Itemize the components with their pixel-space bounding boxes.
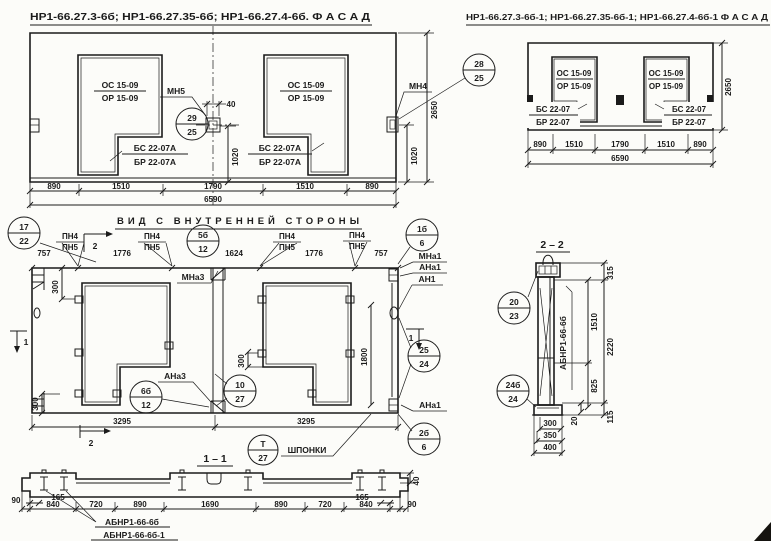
anchor-mark-an1: АН1: [418, 274, 435, 284]
apron-mark: БС 22-07А: [134, 143, 176, 153]
callout-2b-6: 2б 6: [398, 414, 440, 455]
blueprint-sheet: НР1-66.27.3-6б; НР1-66.27.35-6б; НР1-66.…: [0, 0, 771, 541]
window-mark: ОР 15-09: [102, 93, 139, 103]
facade-main-title: НР1-66.27.3-6б; НР1-66.27.35-6б; НР1-66.…: [30, 11, 370, 23]
section-marker-label: 1: [24, 337, 29, 347]
apron-mark: БР 22-07: [536, 118, 570, 127]
linework: [527, 399, 536, 407]
callout-bottom: 24: [419, 359, 429, 369]
linework: [398, 247, 410, 264]
dim: 1790: [204, 182, 222, 191]
dim-total: 6590: [611, 154, 629, 163]
linework: [22, 473, 408, 497]
anchor-mark-pn5: ПН5: [144, 243, 161, 252]
window-mark: ОР 15-09: [557, 82, 592, 91]
callout-bottom: 25: [474, 73, 484, 83]
linework: [225, 30, 430, 185]
anchor-mark-mn5: МН5: [167, 86, 185, 96]
callout-bottom: 25: [187, 127, 197, 137]
linework: [32, 268, 398, 413]
dim: 3295: [113, 417, 131, 426]
linework: [578, 260, 607, 418]
dim: 890: [133, 500, 147, 509]
dim: 165: [355, 493, 369, 502]
linework: [536, 263, 560, 277]
linework: [104, 428, 111, 434]
anchor-mark-ana1: АНа1: [419, 400, 441, 410]
apron-mark: БС 22-07: [672, 105, 707, 114]
dim: 890: [533, 140, 547, 149]
inner-view: ВИД С ВНУТРЕННЕЙ СТОРОНЫ 17 22 ПН4 ПН5 П…: [8, 215, 447, 465]
section-marker-label: 1: [409, 333, 414, 343]
dim: 315: [606, 266, 615, 280]
dim: 1020: [231, 148, 240, 166]
dim: 1510: [296, 182, 314, 191]
dim: 1510: [657, 140, 675, 149]
drawing-canvas: НР1-66.27.3-6б; НР1-66.27.35-6б; НР1-66.…: [0, 0, 771, 541]
linework: [30, 119, 39, 132]
linework: [390, 307, 398, 319]
linework: [539, 266, 557, 274]
linework: [390, 120, 395, 129]
linework: [534, 405, 562, 415]
window-mark: ОС 15-09: [649, 69, 684, 78]
dim: 890: [365, 182, 379, 191]
linework: [398, 414, 412, 431]
dim: 1510: [565, 140, 583, 149]
apron-mark: БС 22-07: [536, 105, 571, 114]
linework: [165, 342, 173, 349]
section-1-1: 1 – 1 40 90 165 840 720 890 1690 890 720…: [12, 453, 421, 540]
linework: [106, 231, 113, 237]
linework: [162, 399, 209, 407]
anchor-mark-mn4: МН4: [409, 81, 427, 91]
callout-24b-24: 24б 24: [497, 375, 536, 407]
window-mark: ОР 15-09: [649, 82, 684, 91]
panel-brand: АБНР1-66-6б-1: [103, 530, 165, 540]
dim: 2220: [606, 338, 615, 356]
linework: [267, 58, 345, 172]
section-marker-2: 2: [84, 231, 113, 252]
callout-top: 24б: [506, 380, 521, 390]
anchor-mark-ana3: АНа3: [164, 371, 186, 381]
dim: 757: [374, 249, 388, 258]
callout-bottom: 27: [235, 394, 245, 404]
dim: 1020: [410, 147, 419, 165]
callout-bottom: 6: [420, 238, 425, 248]
dim: 720: [89, 500, 103, 509]
linework: [258, 296, 266, 303]
linework: [82, 283, 170, 405]
callout-bottom: 23: [509, 311, 519, 321]
linework: [346, 350, 354, 357]
linework: [202, 101, 226, 116]
linework: [545, 266, 551, 274]
dim: 840: [46, 500, 60, 509]
facade-mirrored: НР1-66.27.3-6б-1; НР1-66.27.35-6б-1; НР1…: [466, 12, 770, 168]
window-mark: ОР 15-09: [288, 93, 325, 103]
callout-6b-12: 6б 12: [130, 381, 209, 413]
dim: 1510: [112, 182, 130, 191]
dim: 40: [412, 476, 421, 485]
dim: 2650: [430, 101, 439, 119]
section-marker-1-left: 1: [10, 331, 29, 353]
scan-corner-artifact: [754, 522, 771, 541]
window-mark: ОС 15-09: [288, 80, 325, 90]
apron-mark: БР 22-07А: [134, 157, 176, 167]
linework: [81, 58, 159, 172]
dim: 1776: [305, 249, 323, 258]
section-marker-label: 2: [93, 241, 98, 251]
linework: [616, 95, 624, 105]
linework: [32, 268, 44, 290]
dim: 400: [543, 443, 557, 452]
dim: 40: [227, 100, 236, 109]
anchor-mark-pn4: ПН4: [144, 232, 161, 241]
callout-17-22: 17 22: [8, 217, 96, 262]
linework: [32, 415, 398, 431]
linework: [39, 265, 374, 416]
dim: 1690: [201, 500, 219, 509]
anchor-mark-pn4: ПН4: [279, 232, 296, 241]
anchor-mark-pn5: ПН5: [62, 243, 79, 252]
dim: 890: [693, 140, 707, 149]
dim: 300: [237, 354, 246, 368]
callout-top: 28: [474, 59, 484, 69]
dim: 890: [274, 500, 288, 509]
callout-top: 20: [509, 297, 519, 307]
linework: [42, 299, 263, 394]
dim: 300: [543, 419, 557, 428]
section-1-1-title: 1 – 1: [203, 453, 227, 465]
linework: [85, 286, 167, 402]
dim: 1800: [360, 348, 369, 366]
keys-label: ШПОНКИ: [288, 445, 327, 455]
dim: 115: [606, 410, 615, 423]
anchor-mark-mna3: МНа3: [182, 272, 205, 282]
linework: [528, 271, 538, 297]
dim: 1510: [590, 313, 599, 331]
anchor-marks-pn: ПН4 ПН5 ПН4 ПН5 ПН4 ПН5 ПН4 ПН5: [56, 231, 371, 266]
callout-top: 1б: [417, 224, 427, 234]
window-mark: ОС 15-09: [102, 80, 139, 90]
callout-29-25: 29 25: [176, 108, 208, 140]
linework: [263, 283, 351, 405]
dim: 20: [570, 416, 579, 425]
dim: 350: [543, 431, 557, 440]
anchor-mark-ana1: АНа1: [419, 262, 441, 272]
anchor-mark-pn5: ПН5: [279, 243, 296, 252]
linework: [258, 350, 266, 357]
dim: 1776: [113, 249, 131, 258]
apron-mark: БР 22-07А: [259, 157, 301, 167]
dim: 3295: [297, 417, 315, 426]
dim: 1790: [611, 140, 629, 149]
callout-top: 6б: [141, 386, 151, 396]
dim: 300: [51, 280, 60, 294]
dim: 300: [31, 397, 40, 411]
inner-view-title: ВИД С ВНУТРЕННЕЙ СТОРОНЫ: [117, 215, 359, 227]
dim: 2650: [724, 78, 733, 96]
anchor-mark-pn4: ПН4: [349, 231, 366, 240]
callout-bottom: 6: [422, 442, 427, 452]
panel-brand: АБНР1-66-6б: [105, 517, 159, 527]
facade-main: НР1-66.27.3-6б; НР1-66.27.35-6б; НР1-66.…: [27, 11, 495, 208]
linework: [308, 390, 316, 397]
callout-bottom: 12: [141, 400, 151, 410]
callout-bottom: 24: [508, 394, 518, 404]
linework: [399, 318, 411, 398]
callout-bottom: 12: [198, 244, 208, 254]
linework: [207, 473, 221, 484]
apron-mark: БС 22-07А: [259, 143, 301, 153]
dim: 90: [408, 500, 417, 509]
callout-top: 29: [187, 113, 197, 123]
linework: [266, 286, 348, 402]
callout-top: 2б: [419, 428, 429, 438]
linework: [213, 268, 223, 413]
dim: 1624: [225, 249, 243, 258]
dim: 720: [318, 500, 332, 509]
callout-10-27: 10 27: [215, 374, 256, 407]
callout-bottom: 22: [19, 236, 29, 246]
callout-bottom: 27: [258, 453, 268, 463]
linework: [399, 285, 443, 309]
apron-mark: БР 22-07: [672, 118, 706, 127]
callout-top: 10: [235, 380, 245, 390]
section-2-2-title: 2 – 2: [540, 239, 564, 251]
callout-top: 25: [419, 345, 429, 355]
panel-brand: АБНР1-66-6б: [558, 316, 568, 370]
facade-mirrored-title: НР1-66.27.3-6б-1; НР1-66.27.35-6б-1; НР1…: [466, 12, 769, 22]
linework: [34, 308, 40, 318]
linework: [14, 346, 20, 353]
section-marker-label: 2: [89, 438, 94, 448]
anchor-mark-mna1: МНа1: [419, 251, 442, 261]
callout-20-23: 20 23: [498, 271, 538, 324]
linework: [158, 382, 211, 402]
callout-top: 5б: [198, 230, 208, 240]
linework: [160, 97, 206, 116]
callout-5b-12: 5б 12: [187, 225, 219, 257]
anchor-mark-pn4: ПН4: [62, 232, 79, 241]
linework: [346, 296, 354, 303]
window-mark: ОС 15-09: [557, 69, 592, 78]
dim: 890: [47, 182, 61, 191]
callout-top: Т: [260, 439, 266, 449]
linework: [42, 268, 371, 413]
callout-top: 17: [19, 222, 29, 232]
dim-total: 6590: [204, 195, 222, 204]
section-marker-2-bottom: 2: [80, 425, 111, 448]
section-2-2: 2 – 2 АБНР1-66-6б 315 1510 2220 825 20 1…: [497, 239, 615, 456]
dim: 90: [12, 496, 21, 505]
dim: 757: [37, 249, 51, 258]
dim: 825: [590, 379, 599, 393]
